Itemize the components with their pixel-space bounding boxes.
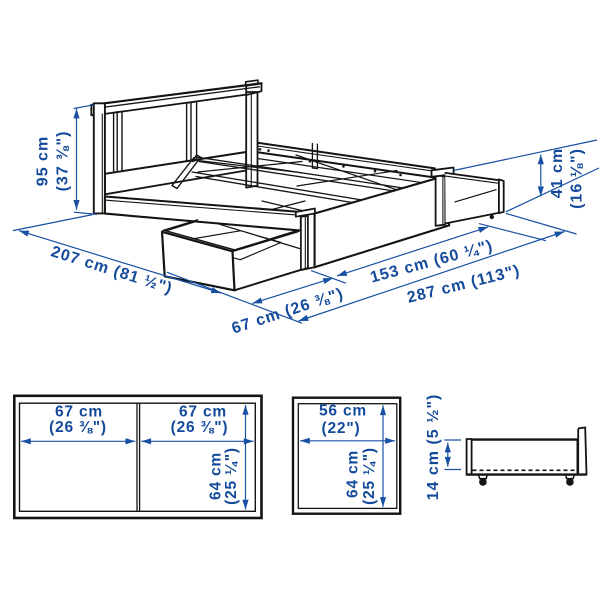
svg-text:(16 ⅛"): (16 ⅛") [568, 148, 585, 209]
svg-text:67 cm: 67 cm [55, 403, 103, 420]
svg-text:(37 ⅜"): (37 ⅜") [54, 131, 71, 192]
svg-text:56 cm: 56 cm [319, 402, 367, 419]
svg-text:(25 ¼"): (25 ¼") [223, 447, 240, 505]
svg-text:(26 ⅜"): (26 ⅜") [171, 419, 229, 436]
svg-text:207 cm (81 ½"): 207 cm (81 ½") [49, 243, 175, 297]
svg-text:(26 ⅜"): (26 ⅜") [49, 419, 107, 436]
svg-text:(25 ¼"): (25 ¼") [361, 447, 378, 505]
svg-text:14 cm (5 ½"): 14 cm (5 ½") [425, 394, 442, 501]
svg-text:64 cm: 64 cm [208, 452, 225, 500]
svg-text:41 cm: 41 cm [549, 148, 566, 198]
svg-text:(22"): (22") [322, 420, 361, 437]
svg-text:64 cm: 64 cm [345, 450, 362, 498]
svg-text:95 cm: 95 cm [35, 136, 52, 186]
svg-text:67 cm: 67 cm [179, 403, 227, 420]
